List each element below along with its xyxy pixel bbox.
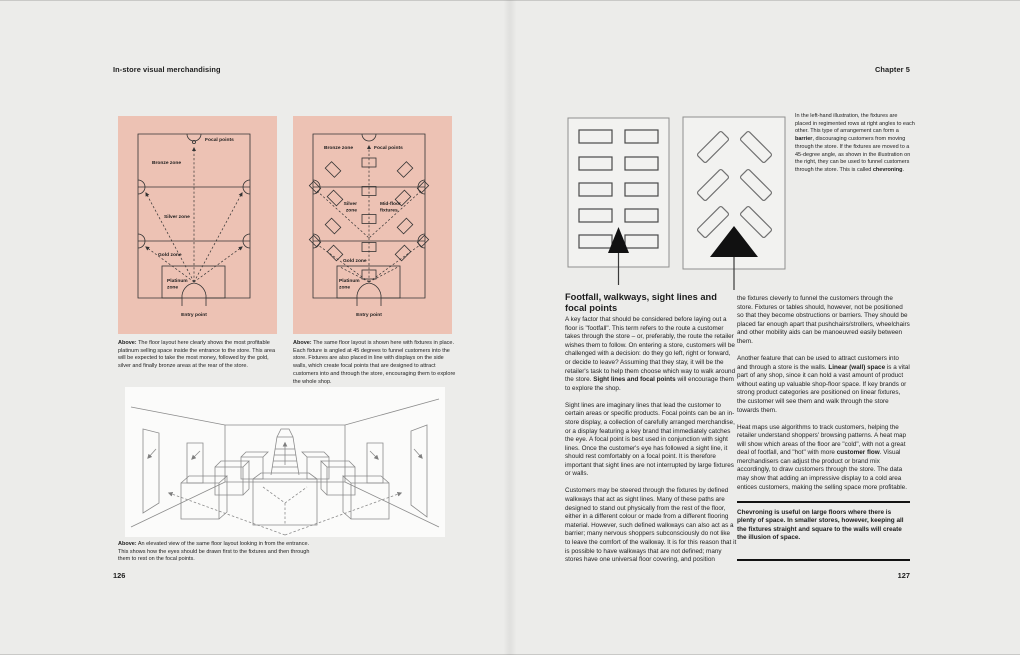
focal-points-label: Focal points	[205, 137, 234, 143]
paragraph: Heat maps use algorithms to track custom…	[737, 424, 910, 493]
book-spread: In-store visual merchandising Chapter 5	[0, 0, 1020, 655]
illustration-caption: Above: An elevated view of the same floo…	[118, 541, 313, 564]
section-heading: Footfall, walkways, sight lines and foca…	[565, 292, 741, 314]
entry-point-label: Entry point	[181, 312, 207, 318]
page-number-left: 126	[113, 571, 125, 580]
silver-zone-label: Silver zone	[164, 214, 190, 220]
paragraph: In the left-hand illustration, the fixtu…	[795, 113, 915, 175]
callout-tip: Chevroning is useful on large floors whe…	[737, 501, 910, 543]
panel-arrow-icon	[414, 449, 422, 458]
paragraph: Sight lines are imaginary lines that lea…	[565, 402, 737, 479]
platinum-zone-label: Platinum	[167, 278, 188, 284]
cube-fixtures-right	[302, 452, 389, 519]
gold-zone-label: Gold zone	[158, 252, 182, 258]
focal-points-label: Focal points	[374, 145, 403, 151]
paragraph: Customers may be steered through the fix…	[565, 487, 737, 564]
paragraph: Above: The floor layout here clearly sho…	[118, 340, 278, 371]
sight-line-arrows	[146, 148, 242, 282]
floor-plan-panel-zones: Focal points Bronze zone Silver zone Gol…	[118, 116, 277, 334]
silver-zone-label-2: zone	[346, 209, 357, 214]
callout-bottom-rule	[737, 559, 910, 561]
paragraph: Above: An elevated view of the same floo…	[118, 541, 313, 564]
diagram-caption: In the left-hand illustration, the fixtu…	[795, 113, 915, 175]
store-sketch-panel	[125, 387, 445, 537]
running-head-right: Chapter 5	[810, 65, 910, 74]
panel-arrow-icon	[370, 451, 378, 459]
platinum-zone-label-2: zone	[167, 286, 178, 291]
page-number-right: 127	[860, 571, 910, 580]
zone-labels: Focal points Bronze zone Silver zone Gol…	[152, 137, 234, 318]
panel-arrow-icon	[148, 449, 156, 458]
platinum-zone-label: Platinum	[339, 278, 360, 284]
paragraph: A key factor that should be considered b…	[565, 316, 737, 393]
chevroned-fixtures-diagram	[682, 116, 786, 297]
panel-arrow-icon	[192, 451, 200, 459]
fixture-rows-diagram	[567, 117, 670, 292]
entry-door-swing	[182, 283, 206, 298]
zone-labels: Bronze zone Focal points Silver zone Mid…	[324, 145, 403, 318]
paragraph: Above: The same floor layout is shown he…	[293, 340, 456, 386]
store-sketch-illustration	[125, 387, 445, 537]
bronze-zone-label: Bronze zone	[324, 145, 353, 151]
body-column-2: the fixtures cleverly to funnel the cust…	[737, 295, 910, 501]
entry-door-swing	[357, 283, 381, 298]
page-gutter	[503, 0, 517, 655]
sight-lines	[317, 146, 421, 282]
floor-plan-caption-2: Above: The same floor layout is shown he…	[293, 340, 456, 386]
fixture-rows-svg	[567, 117, 670, 287]
mid-floor-fixtures-label-2: fixtures	[380, 208, 398, 214]
paragraph: Chevroning is useful on large floors whe…	[737, 509, 910, 543]
entry-point-label: Entry point	[356, 312, 382, 318]
running-head-left: In-store visual merchandising	[113, 65, 221, 74]
floor-plan-fixtures-diagram: Bronze zone Focal points Silver zone Mid…	[293, 116, 452, 334]
paragraph: the fixtures cleverly to funnel the cust…	[737, 295, 910, 347]
platinum-zone-label-2: zone	[339, 286, 350, 291]
paragraph: Another feature that can be used to attr…	[737, 355, 910, 415]
chevroned-fixtures-svg	[682, 116, 786, 292]
floor-plan-caption-1: Above: The floor layout here clearly sho…	[118, 340, 278, 371]
bronze-zone-label: Bronze zone	[152, 160, 181, 166]
body-column-1: A key factor that should be considered b…	[565, 316, 737, 573]
floor-plan-panel-fixtures: Bronze zone Focal points Silver zone Mid…	[293, 116, 452, 334]
mid-floor-fixtures-label: Mid-floor	[380, 201, 401, 207]
silver-zone-label: Silver	[344, 201, 357, 207]
cube-fixtures-left	[181, 452, 268, 519]
floor-plan-zones-diagram: Focal points Bronze zone Silver zone Gol…	[118, 116, 277, 334]
gold-zone-label: Gold zone	[343, 258, 367, 264]
